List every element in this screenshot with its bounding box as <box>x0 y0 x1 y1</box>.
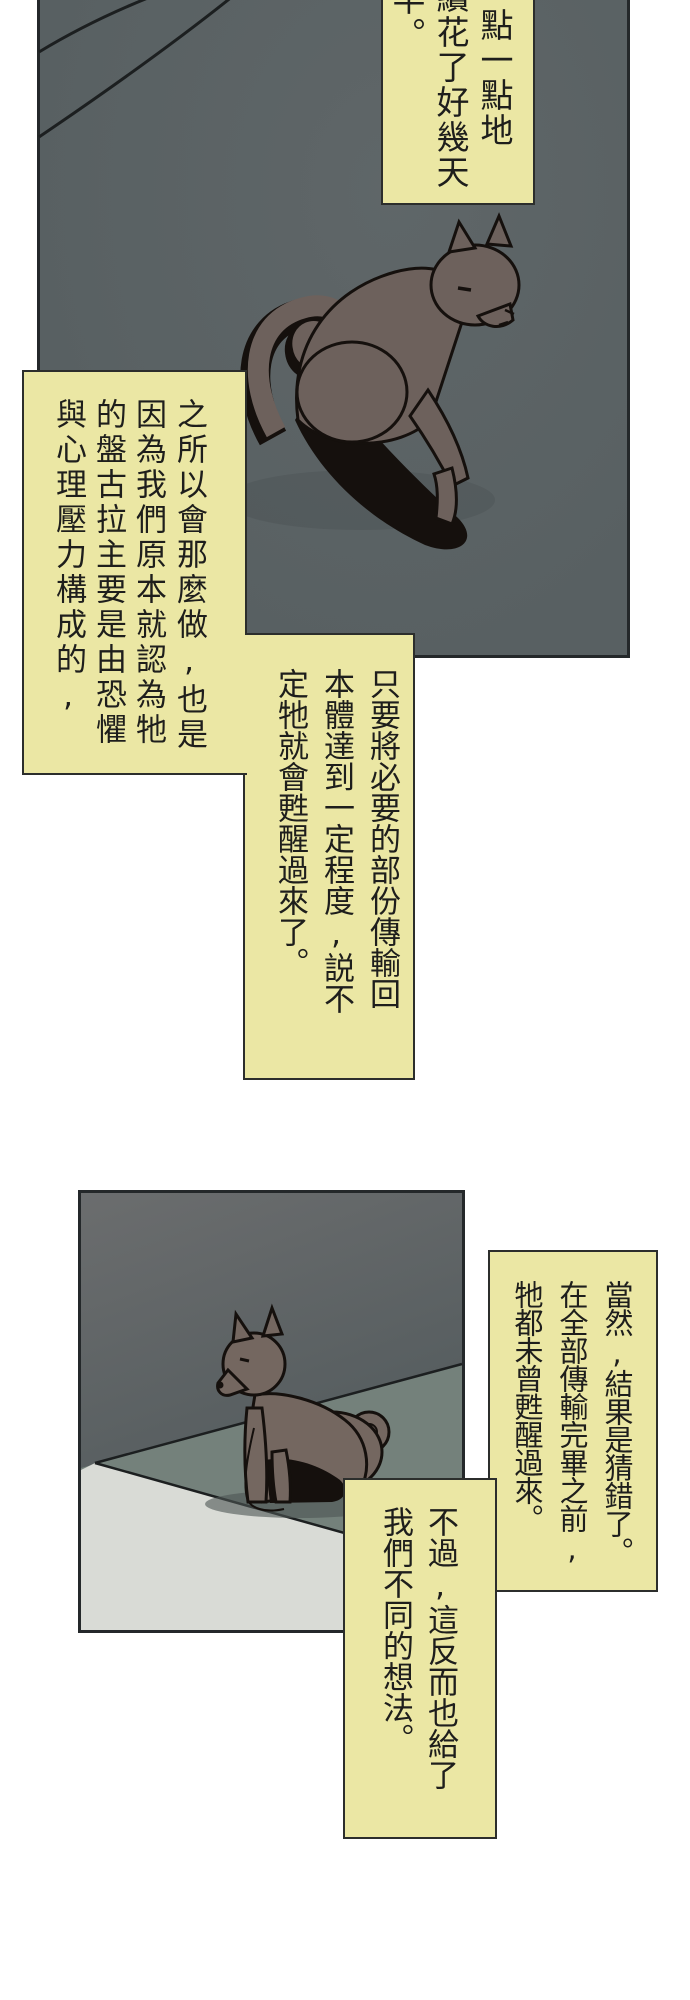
narration-column: 不過,這反而也給了 <box>424 1506 455 1790</box>
narration-column: 因為我們原本就認為牠 <box>132 398 163 748</box>
narration-box-result: 當然,結果是猜錯了。 在全部傳輸完畢之前, 牠都未曾甦醒過來。 <box>488 1250 658 1592</box>
narration-column: 當然,結果是猜錯了。 <box>602 1280 631 1565</box>
narration-column: 定牠就會甦醒過來了。 <box>274 668 305 978</box>
comic-page: 點一點地 續花了好幾天 半。 只要將必要的部份傳輸回 本體達到一定程度,説不 定… <box>0 0 690 2000</box>
narration-column: 牠都未曾甦醒過來。 <box>512 1280 541 1532</box>
narration-column: 在全部傳輸完畢之前, <box>557 1280 586 1565</box>
narration-column: 半。 <box>390 0 423 52</box>
balloon-border-segment <box>245 372 247 635</box>
narration-column: 我們不同的想法。 <box>379 1506 410 1754</box>
narration-box-idea: 不過,這反而也給了 我們不同的想法。 <box>343 1478 497 1839</box>
narration-column: 續花了好幾天 <box>434 0 467 190</box>
narration-box-reason: 之所以會那麼做,也是 因為我們原本就認為牠 的盤古拉主要是由恐懼 與心理壓力構成… <box>22 370 247 775</box>
narration-column: 之所以會那麼做,也是 <box>173 398 204 753</box>
narration-column: 的盤古拉主要是由恐懼 <box>92 398 123 748</box>
narration-box-top: 點一點地 續花了好幾天 半。 <box>381 0 535 205</box>
narration-column: 只要將必要的部份傳輸回 <box>366 668 397 1009</box>
narration-column: 本體達到一定程度,説不 <box>320 668 351 1014</box>
narration-column: 與心理壓力構成的, <box>52 398 83 718</box>
narration-column: 點一點地 <box>478 8 511 148</box>
narration-box-transfer: 只要將必要的部份傳輸回 本體達到一定程度,説不 定牠就會甦醒過來了。 <box>243 633 415 1080</box>
